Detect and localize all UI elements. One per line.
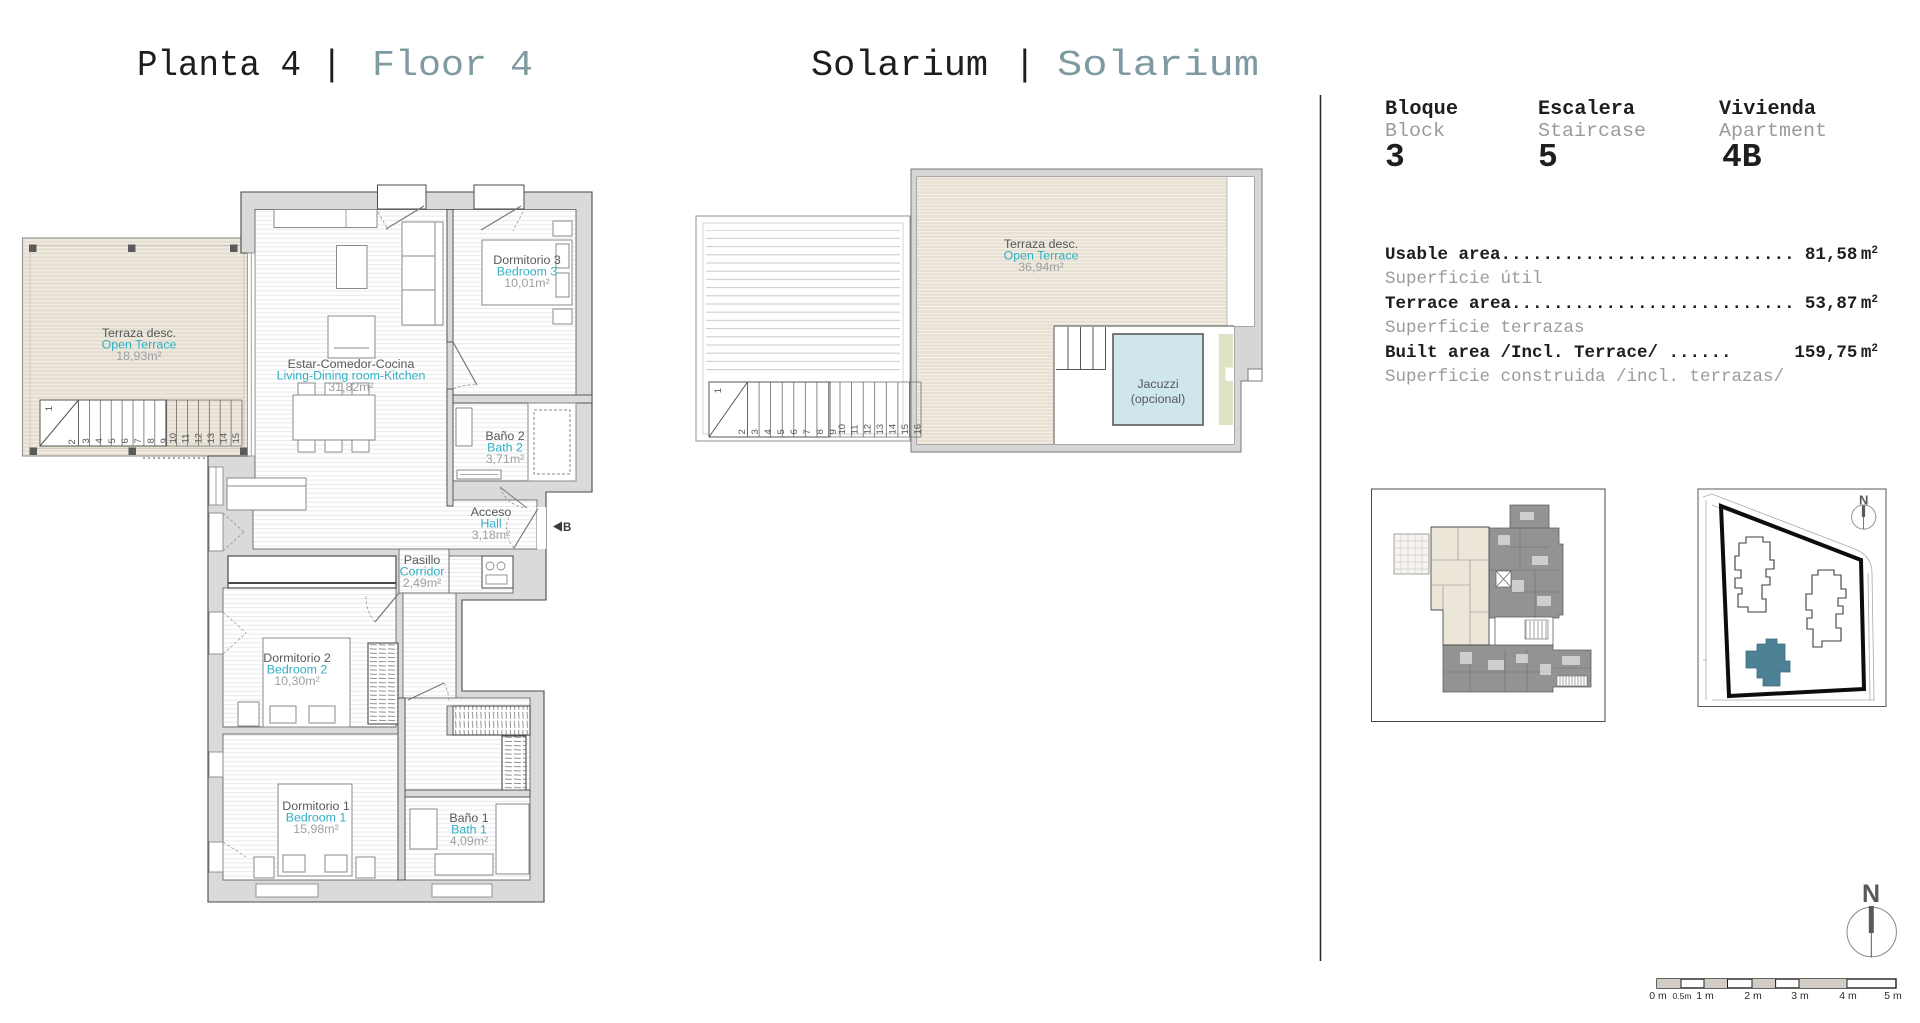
- svg-text:10: 10: [837, 424, 848, 435]
- svg-text:Usable area...................: Usable area............................: [1385, 245, 1795, 265]
- svg-text:Floor 4: Floor 4: [372, 45, 533, 86]
- svg-text:8: 8: [815, 429, 826, 434]
- svg-text:3: 3: [750, 429, 761, 434]
- svg-text:Built area /Incl. Terrace/ ...: Built area /Incl. Terrace/ ......: [1385, 343, 1732, 363]
- svg-text:10,30m²: 10,30m²: [274, 674, 319, 688]
- svg-text:3,18m²: 3,18m²: [472, 528, 511, 542]
- svg-text:15: 15: [231, 433, 242, 444]
- svg-text:3,71m²: 3,71m²: [486, 452, 525, 466]
- svg-text:N: N: [1862, 880, 1880, 908]
- svg-text:12: 12: [862, 424, 873, 435]
- svg-text:14: 14: [218, 433, 229, 444]
- svg-text:11: 11: [181, 434, 192, 444]
- svg-text:4,09m²: 4,09m²: [450, 834, 489, 848]
- svg-text:B: B: [563, 522, 571, 534]
- svg-text:2: 2: [67, 439, 78, 444]
- svg-text:7: 7: [133, 438, 144, 443]
- svg-text:13: 13: [875, 424, 886, 435]
- svg-text:18,93m²: 18,93m²: [116, 349, 161, 363]
- svg-text:81,58 m2: 81,58 m2: [1805, 245, 1878, 265]
- svg-text:53,87 m2: 53,87 m2: [1805, 294, 1878, 314]
- svg-text:0 m: 0 m: [1649, 990, 1667, 1002]
- svg-text:8: 8: [146, 438, 157, 443]
- svg-text:15,98m²: 15,98m²: [293, 822, 338, 836]
- svg-text:|: |: [321, 45, 343, 86]
- svg-text:Superficie terrazas: Superficie terrazas: [1385, 318, 1585, 338]
- svg-text:Escalera: Escalera: [1538, 98, 1635, 121]
- svg-text:15: 15: [900, 424, 911, 435]
- svg-text:3 m: 3 m: [1791, 990, 1809, 1002]
- svg-text:Solarium: Solarium: [1057, 45, 1259, 86]
- svg-text:0.5m: 0.5m: [1673, 991, 1692, 1001]
- svg-text:13: 13: [206, 433, 217, 444]
- svg-text:1: 1: [713, 388, 724, 393]
- svg-text:1 m: 1 m: [1696, 990, 1714, 1002]
- svg-text:3: 3: [81, 438, 92, 443]
- svg-text:Vivienda: Vivienda: [1719, 98, 1816, 121]
- svg-text:12: 12: [193, 433, 204, 444]
- svg-text:Solarium: Solarium: [811, 45, 988, 86]
- svg-text:7: 7: [802, 429, 813, 434]
- svg-text:Superficie construida /incl. t: Superficie construida /incl. terrazas/: [1385, 367, 1784, 387]
- svg-text:Planta 4: Planta 4: [137, 45, 301, 86]
- svg-text:Jacuzzi: Jacuzzi: [1137, 377, 1178, 391]
- svg-text:Terrace area..................: Terrace area...........................: [1385, 294, 1795, 314]
- svg-text:2 m: 2 m: [1744, 990, 1762, 1002]
- svg-text:5: 5: [1538, 139, 1558, 176]
- svg-text:Bloque: Bloque: [1385, 98, 1458, 121]
- svg-text:Superficie útil: Superficie útil: [1385, 269, 1543, 289]
- svg-text:(opcional): (opcional): [1131, 392, 1185, 406]
- svg-text:6: 6: [789, 429, 800, 434]
- svg-text:5: 5: [107, 438, 118, 443]
- svg-text:159,75 m2: 159,75 m2: [1794, 343, 1878, 363]
- svg-text:36,94m²: 36,94m²: [1018, 260, 1063, 274]
- svg-text:31,82m²: 31,82m²: [328, 380, 373, 394]
- svg-text:4 m: 4 m: [1839, 990, 1857, 1002]
- svg-text:2,49m²: 2,49m²: [403, 576, 442, 590]
- svg-text:10,01m²: 10,01m²: [504, 276, 549, 290]
- svg-text:2: 2: [737, 429, 748, 434]
- svg-text:5 m: 5 m: [1884, 990, 1902, 1002]
- svg-text:4: 4: [763, 429, 774, 434]
- svg-text:1: 1: [44, 406, 55, 411]
- svg-text:|: |: [1014, 45, 1036, 86]
- svg-text:6: 6: [120, 438, 131, 443]
- svg-text:4: 4: [94, 438, 105, 443]
- svg-text:11: 11: [850, 425, 861, 435]
- svg-text:10: 10: [168, 433, 179, 444]
- svg-text:14: 14: [887, 424, 898, 435]
- svg-text:4B: 4B: [1722, 139, 1762, 176]
- svg-text:16: 16: [912, 424, 923, 435]
- svg-text:3: 3: [1385, 139, 1405, 176]
- svg-text:5: 5: [776, 429, 787, 434]
